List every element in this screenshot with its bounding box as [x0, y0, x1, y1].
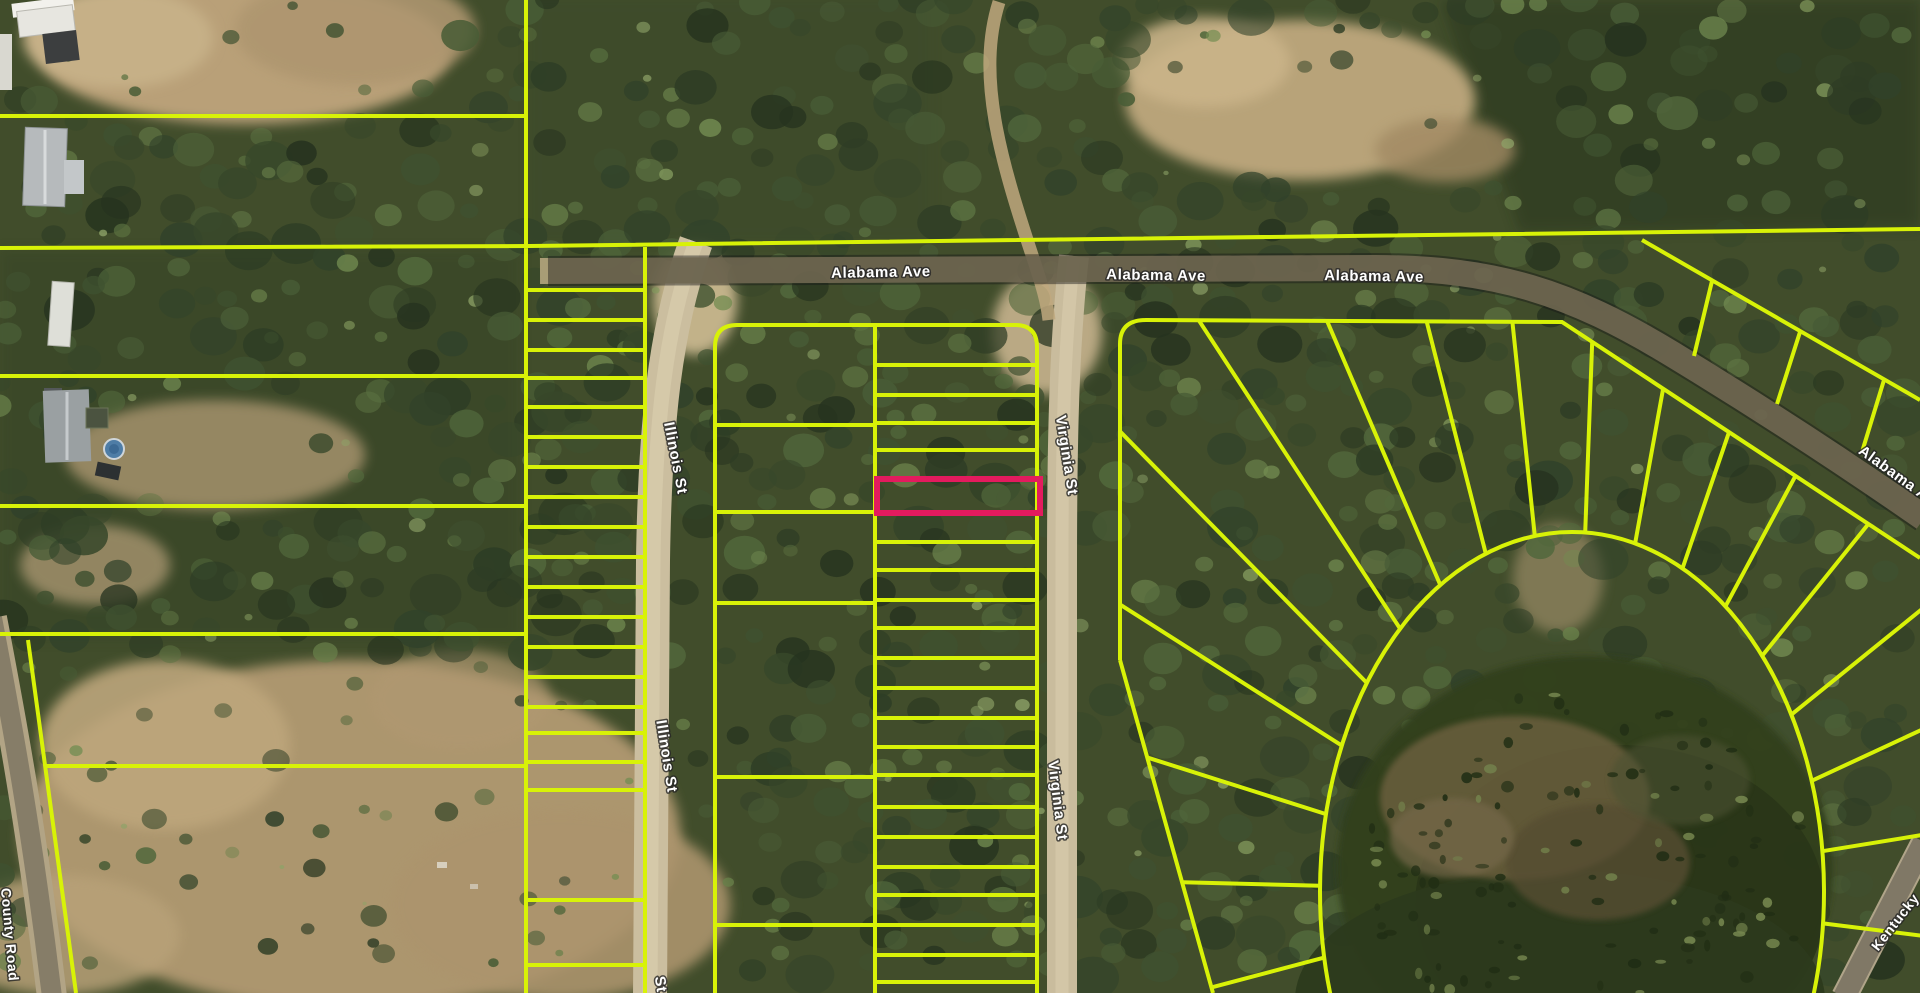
- street-label-alabama-ave-2: Alabama Ave: [1106, 266, 1206, 285]
- street-label-alabama-ave-3: Alabama Ave: [1324, 267, 1424, 286]
- parcel-map-svg[interactable]: Alabama AveAlabama AveAlabama AveAlabama…: [0, 0, 1920, 993]
- map-viewport[interactable]: Alabama AveAlabama AveAlabama AveAlabama…: [0, 0, 1920, 993]
- satellite-terrain: [0, 0, 1920, 993]
- street-label-illinois-st-partial: St: [651, 975, 670, 993]
- street-label-alabama-ave-1: Alabama Ave: [831, 263, 931, 282]
